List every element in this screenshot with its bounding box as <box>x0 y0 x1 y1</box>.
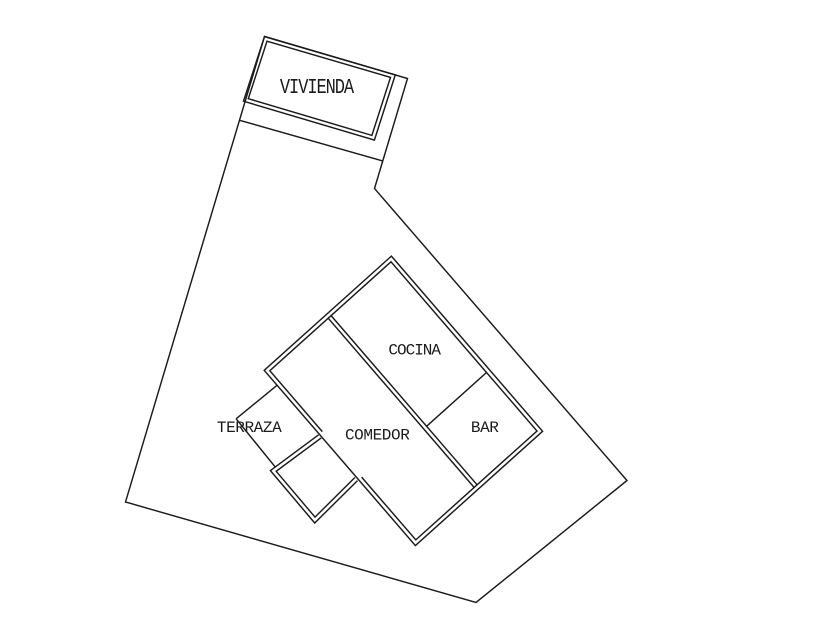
svg-text:VIVIENDA: VIVIENDA <box>280 76 355 100</box>
svg-text:TERRAZA: TERRAZA <box>217 419 282 437</box>
svg-text:COMEDOR: COMEDOR <box>345 427 410 445</box>
svg-text:BAR: BAR <box>471 419 499 437</box>
svg-text:COCINA: COCINA <box>388 342 441 360</box>
